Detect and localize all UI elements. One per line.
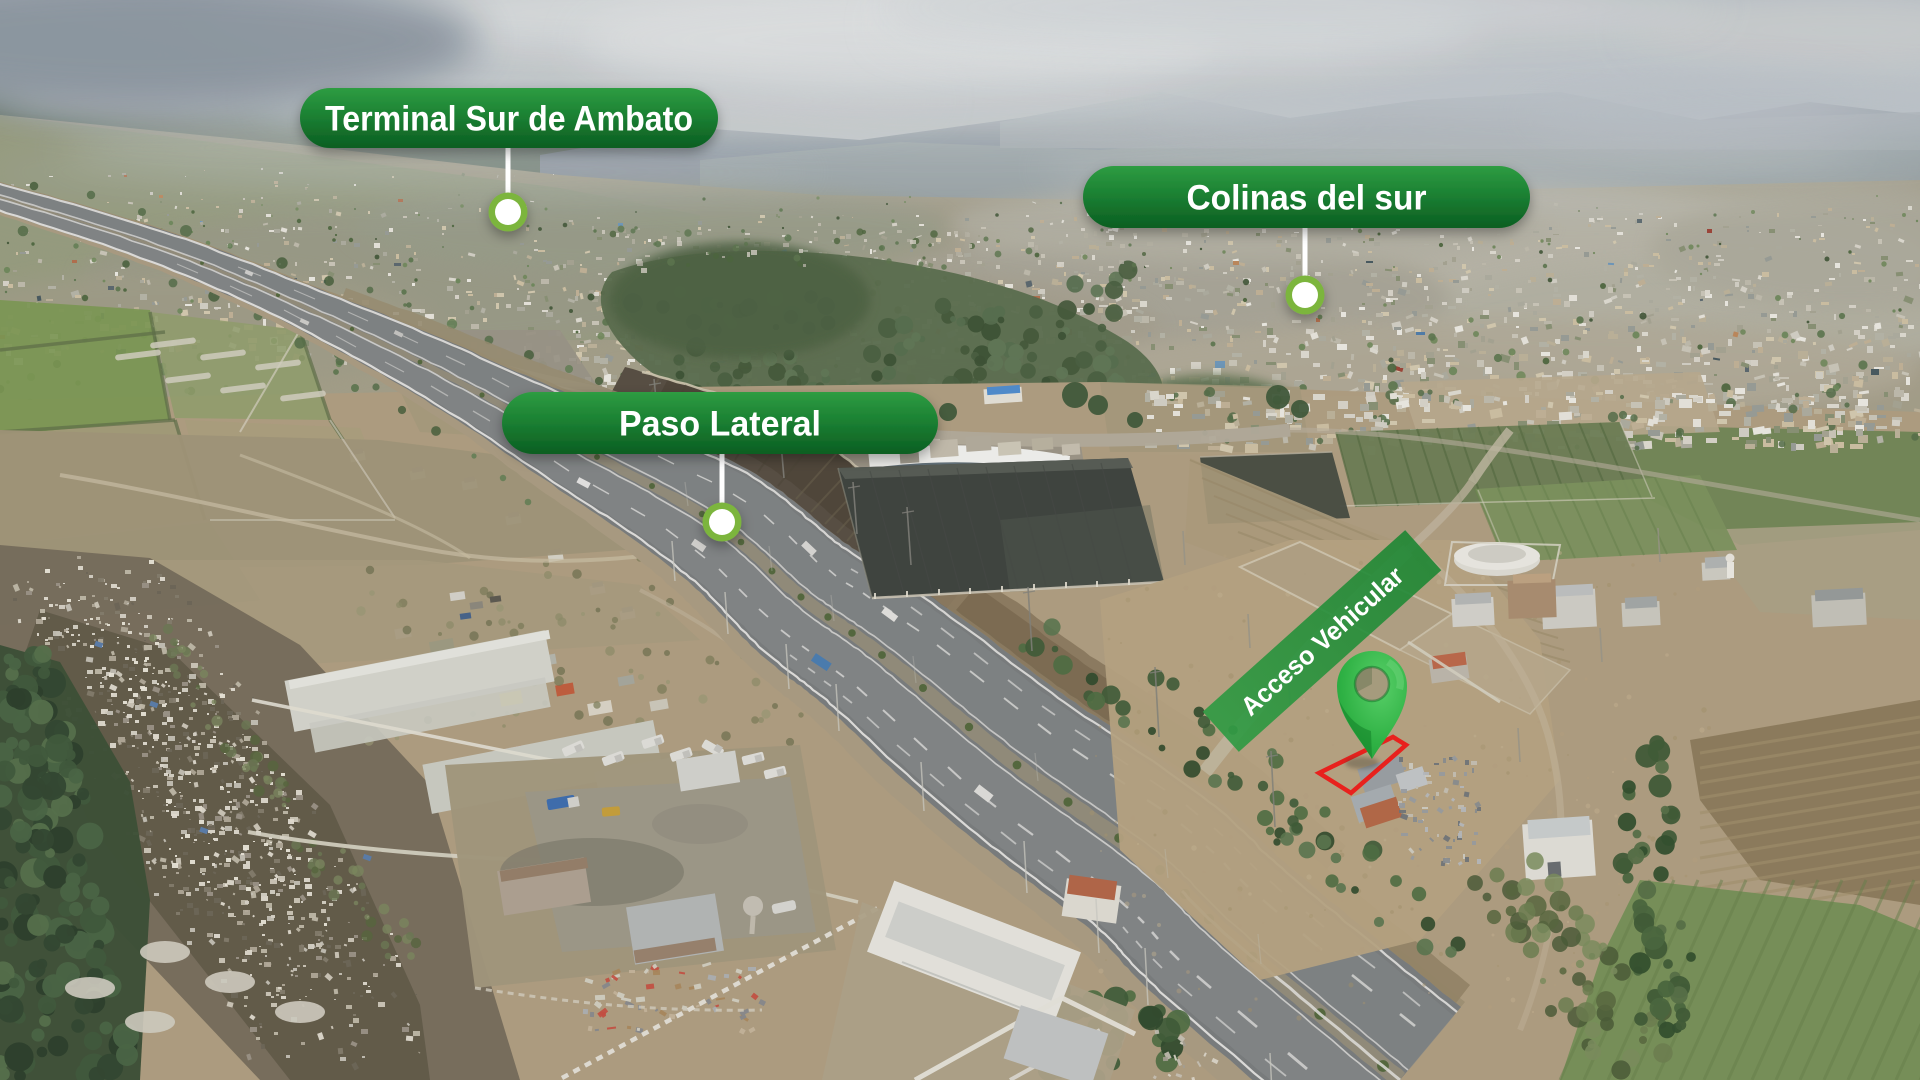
svg-text:Paso Lateral: Paso Lateral: [619, 405, 821, 444]
svg-text:Colinas del sur: Colinas del sur: [1187, 179, 1427, 218]
svg-text:Terminal Sur de Ambato: Terminal Sur de Ambato: [325, 100, 693, 139]
